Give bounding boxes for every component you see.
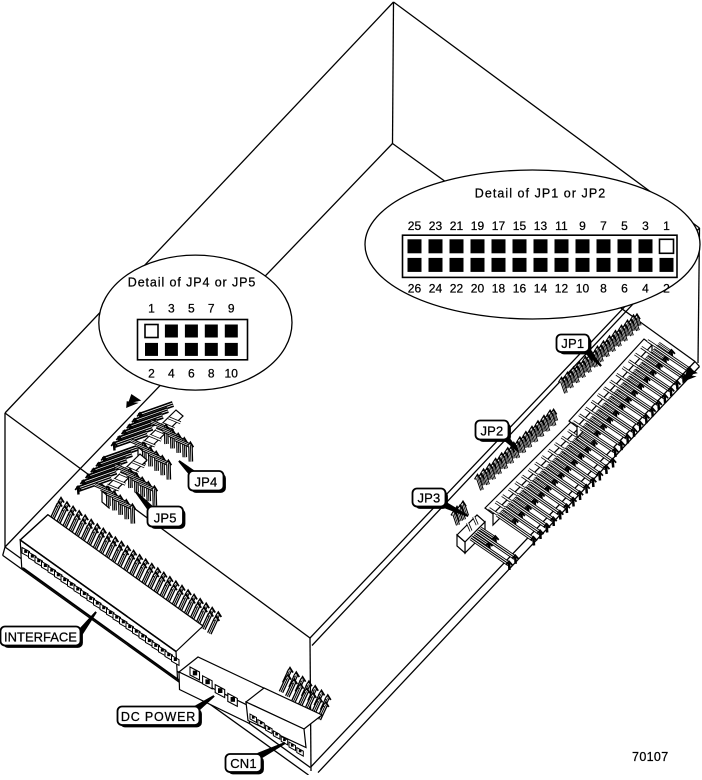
svg-text:7: 7 [600, 219, 607, 233]
svg-text:17: 17 [492, 219, 506, 233]
svg-text:JP4: JP4 [194, 474, 217, 489]
svg-text:9: 9 [228, 302, 235, 316]
svg-text:16: 16 [513, 282, 527, 296]
svg-text:2: 2 [663, 282, 670, 296]
svg-text:JP2: JP2 [480, 423, 503, 438]
svg-text:2: 2 [148, 367, 155, 381]
svg-text:9: 9 [579, 219, 586, 233]
svg-text:5: 5 [621, 219, 628, 233]
svg-text:20: 20 [471, 282, 485, 296]
svg-text:26: 26 [408, 282, 422, 296]
svg-text:13: 13 [534, 219, 548, 233]
svg-text:10: 10 [576, 282, 590, 296]
svg-text:11: 11 [555, 219, 568, 233]
svg-text:4: 4 [642, 282, 649, 296]
svg-text:1: 1 [148, 302, 155, 316]
svg-text:3: 3 [168, 302, 175, 316]
svg-text:Detail of JP4 or JP5: Detail of JP4 or JP5 [128, 276, 256, 290]
svg-text:24: 24 [429, 282, 443, 296]
svg-text:4: 4 [168, 367, 175, 381]
svg-text:JP3: JP3 [417, 490, 440, 505]
svg-text:JP1: JP1 [561, 336, 584, 351]
svg-text:6: 6 [621, 282, 628, 296]
svg-text:23: 23 [429, 219, 443, 233]
svg-text:18: 18 [492, 282, 506, 296]
svg-text:21: 21 [450, 219, 464, 233]
svg-text:10: 10 [225, 367, 239, 381]
svg-text:12: 12 [555, 282, 569, 296]
svg-text:70107: 70107 [632, 750, 669, 764]
svg-text:25: 25 [408, 219, 422, 233]
svg-text:DC POWER: DC POWER [121, 710, 196, 724]
svg-text:3: 3 [642, 219, 649, 233]
svg-text:7: 7 [208, 302, 215, 316]
svg-text:CN1: CN1 [230, 756, 257, 771]
svg-text:22: 22 [450, 282, 464, 296]
svg-text:8: 8 [208, 367, 215, 381]
svg-text:15: 15 [513, 219, 527, 233]
svg-text:Detail of JP1 or JP2: Detail of JP1 or JP2 [475, 187, 606, 201]
svg-text:14: 14 [534, 282, 548, 296]
svg-text:INTERFACE: INTERFACE [4, 629, 77, 644]
svg-text:5: 5 [188, 302, 195, 316]
svg-text:19: 19 [471, 219, 485, 233]
svg-text:8: 8 [600, 282, 607, 296]
svg-text:JP5: JP5 [154, 510, 177, 525]
svg-text:1: 1 [663, 219, 670, 233]
svg-text:6: 6 [188, 367, 195, 381]
